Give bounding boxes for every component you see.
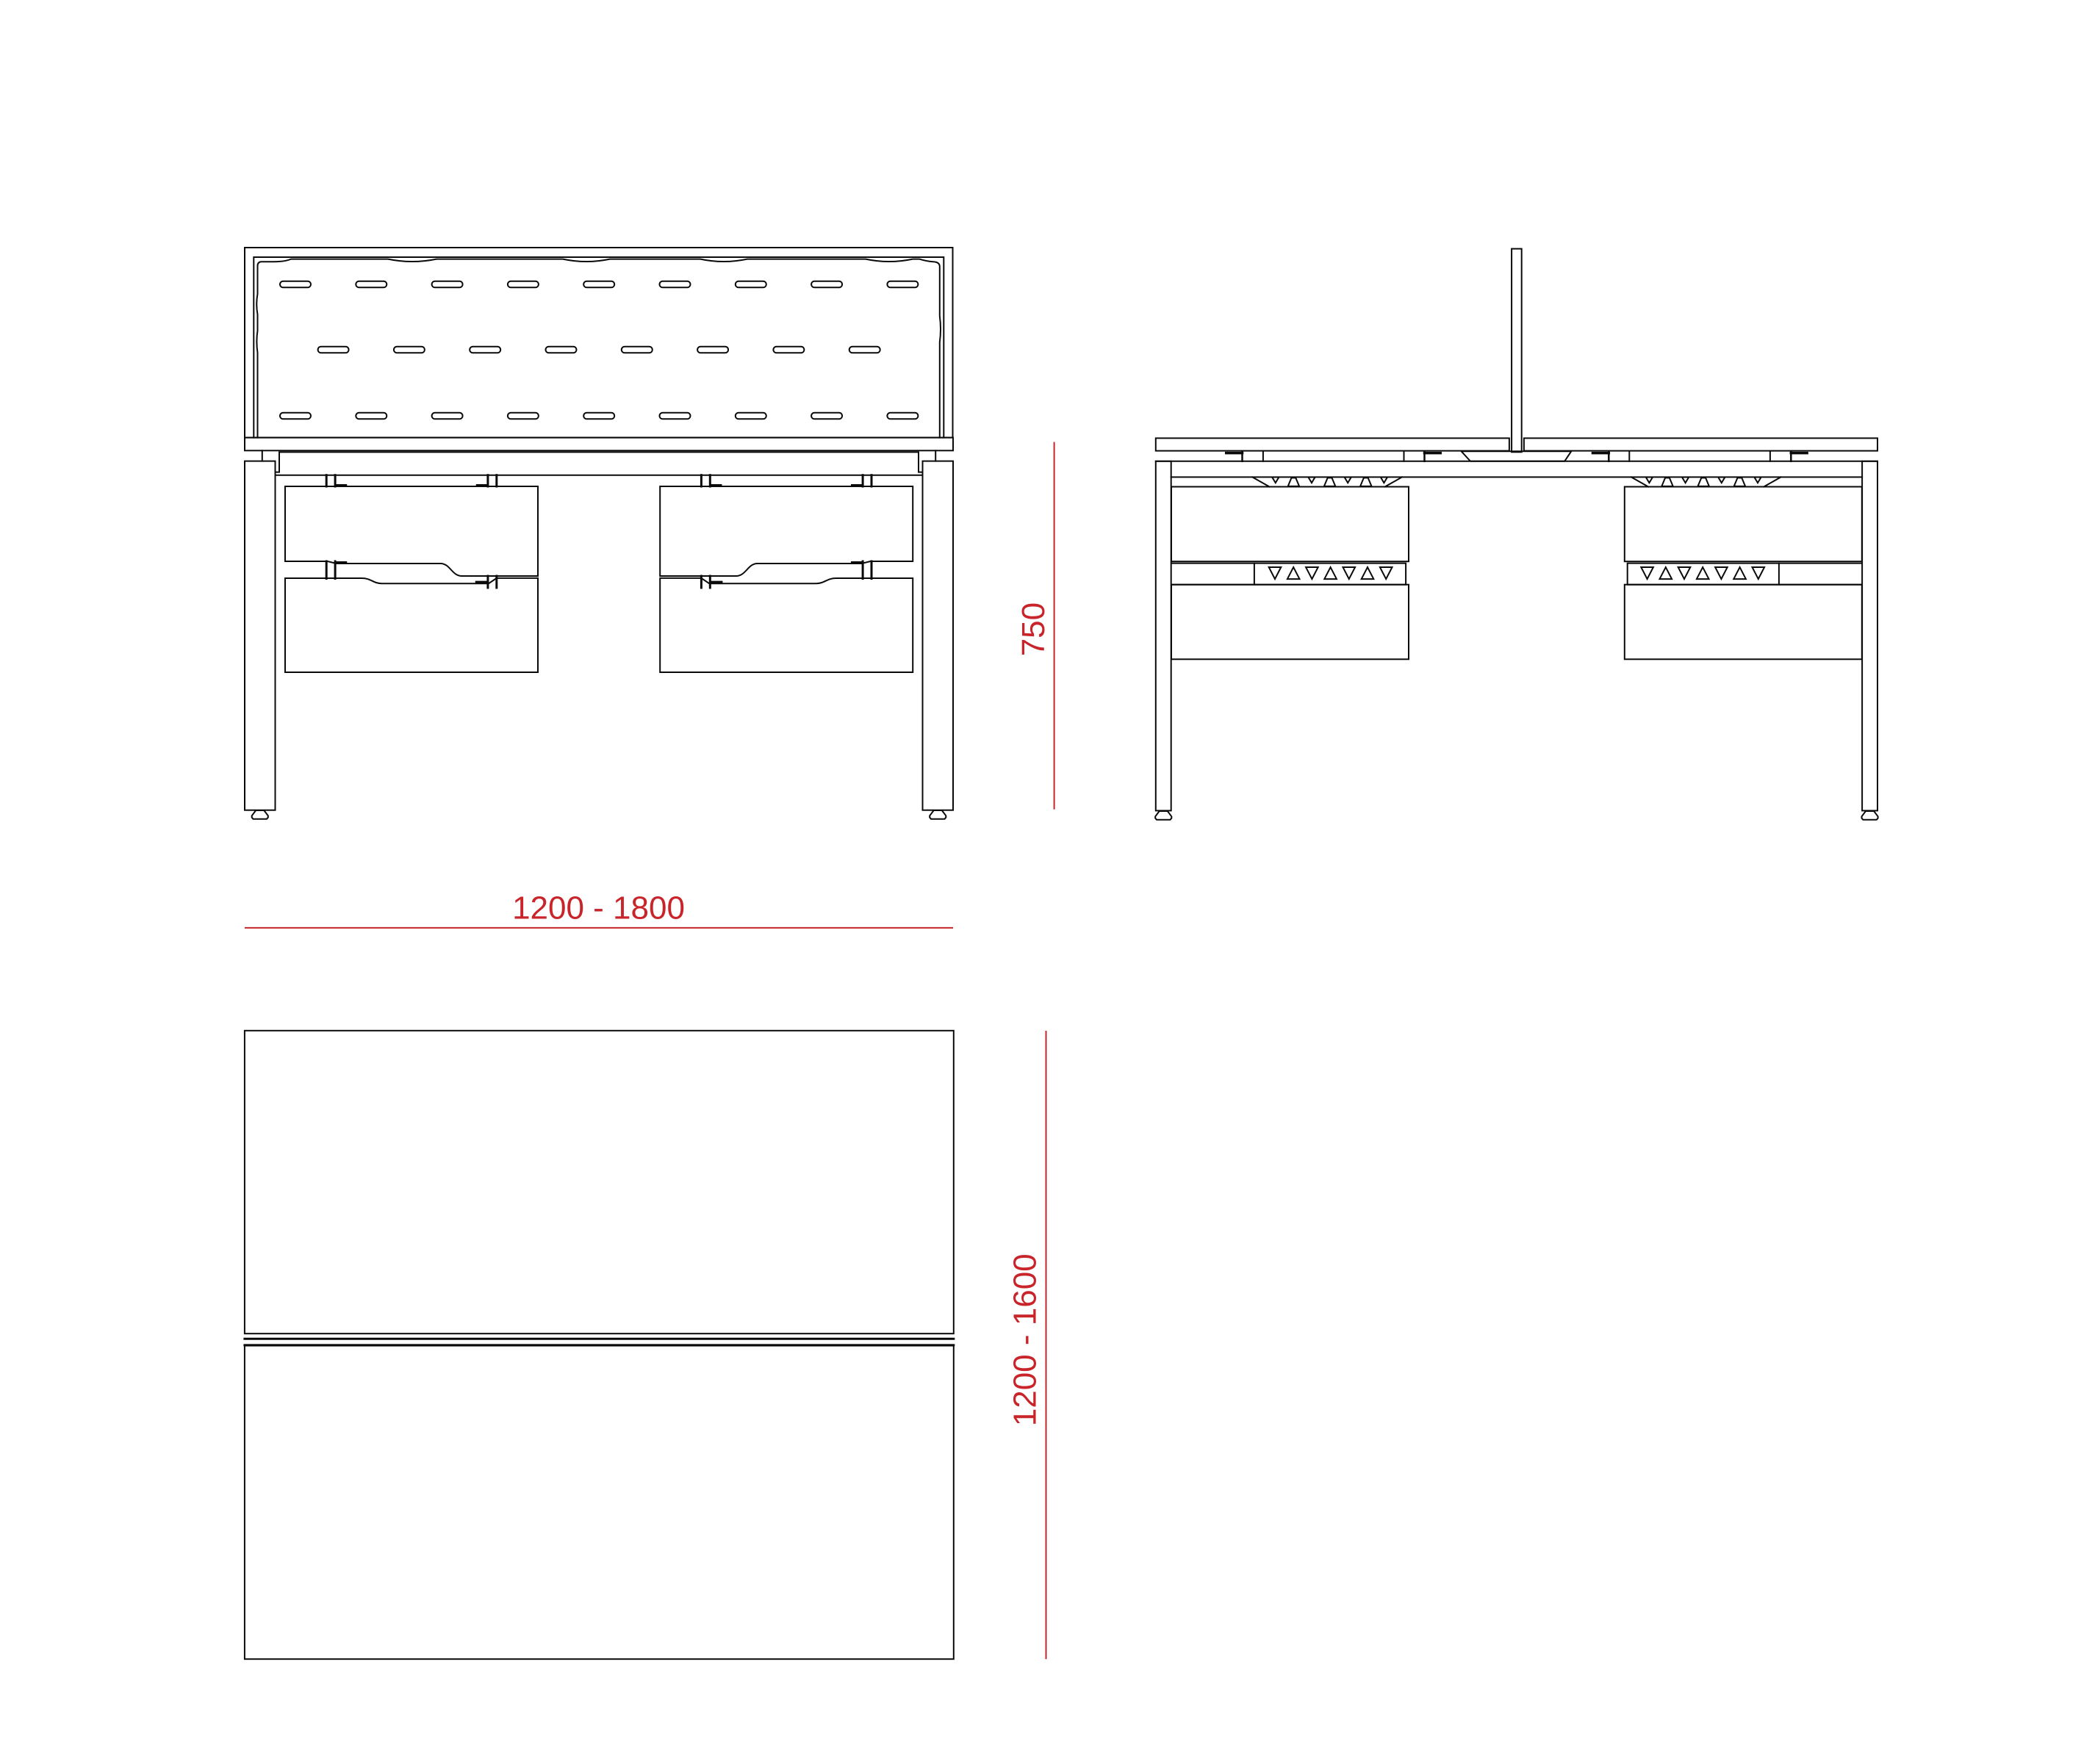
svg-text:1200 - 1800: 1200 - 1800 <box>512 890 685 926</box>
svg-text:1200 - 1600: 1200 - 1600 <box>1007 1253 1043 1426</box>
svg-text:750: 750 <box>1016 602 1052 656</box>
